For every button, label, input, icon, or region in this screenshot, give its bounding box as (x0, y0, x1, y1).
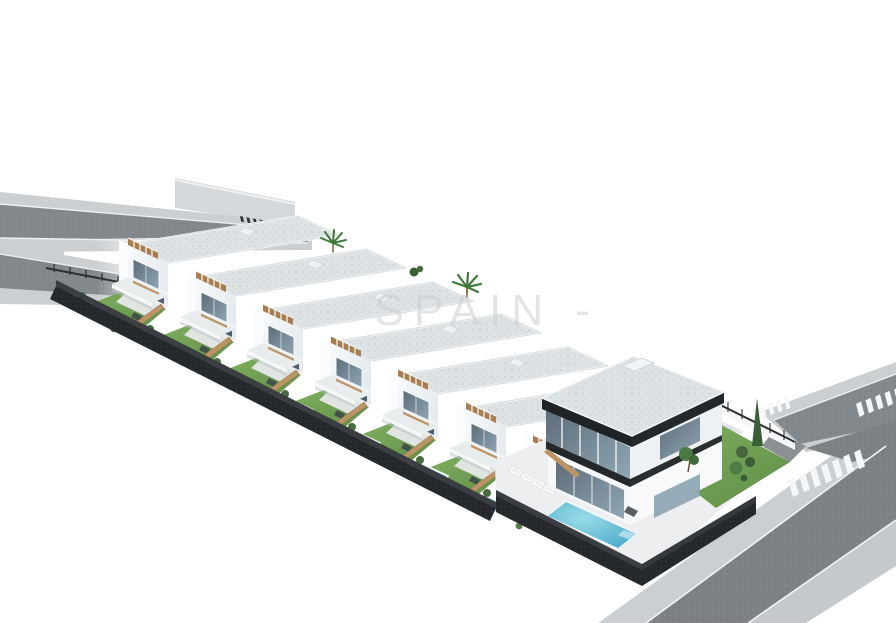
property-render-canvas: SPAIN - (0, 0, 896, 623)
watermark-text: SPAIN - (374, 286, 600, 335)
palm-tree (321, 230, 346, 252)
roof-shrub (410, 266, 424, 277)
property-3d-render: SPAIN - (0, 0, 896, 623)
